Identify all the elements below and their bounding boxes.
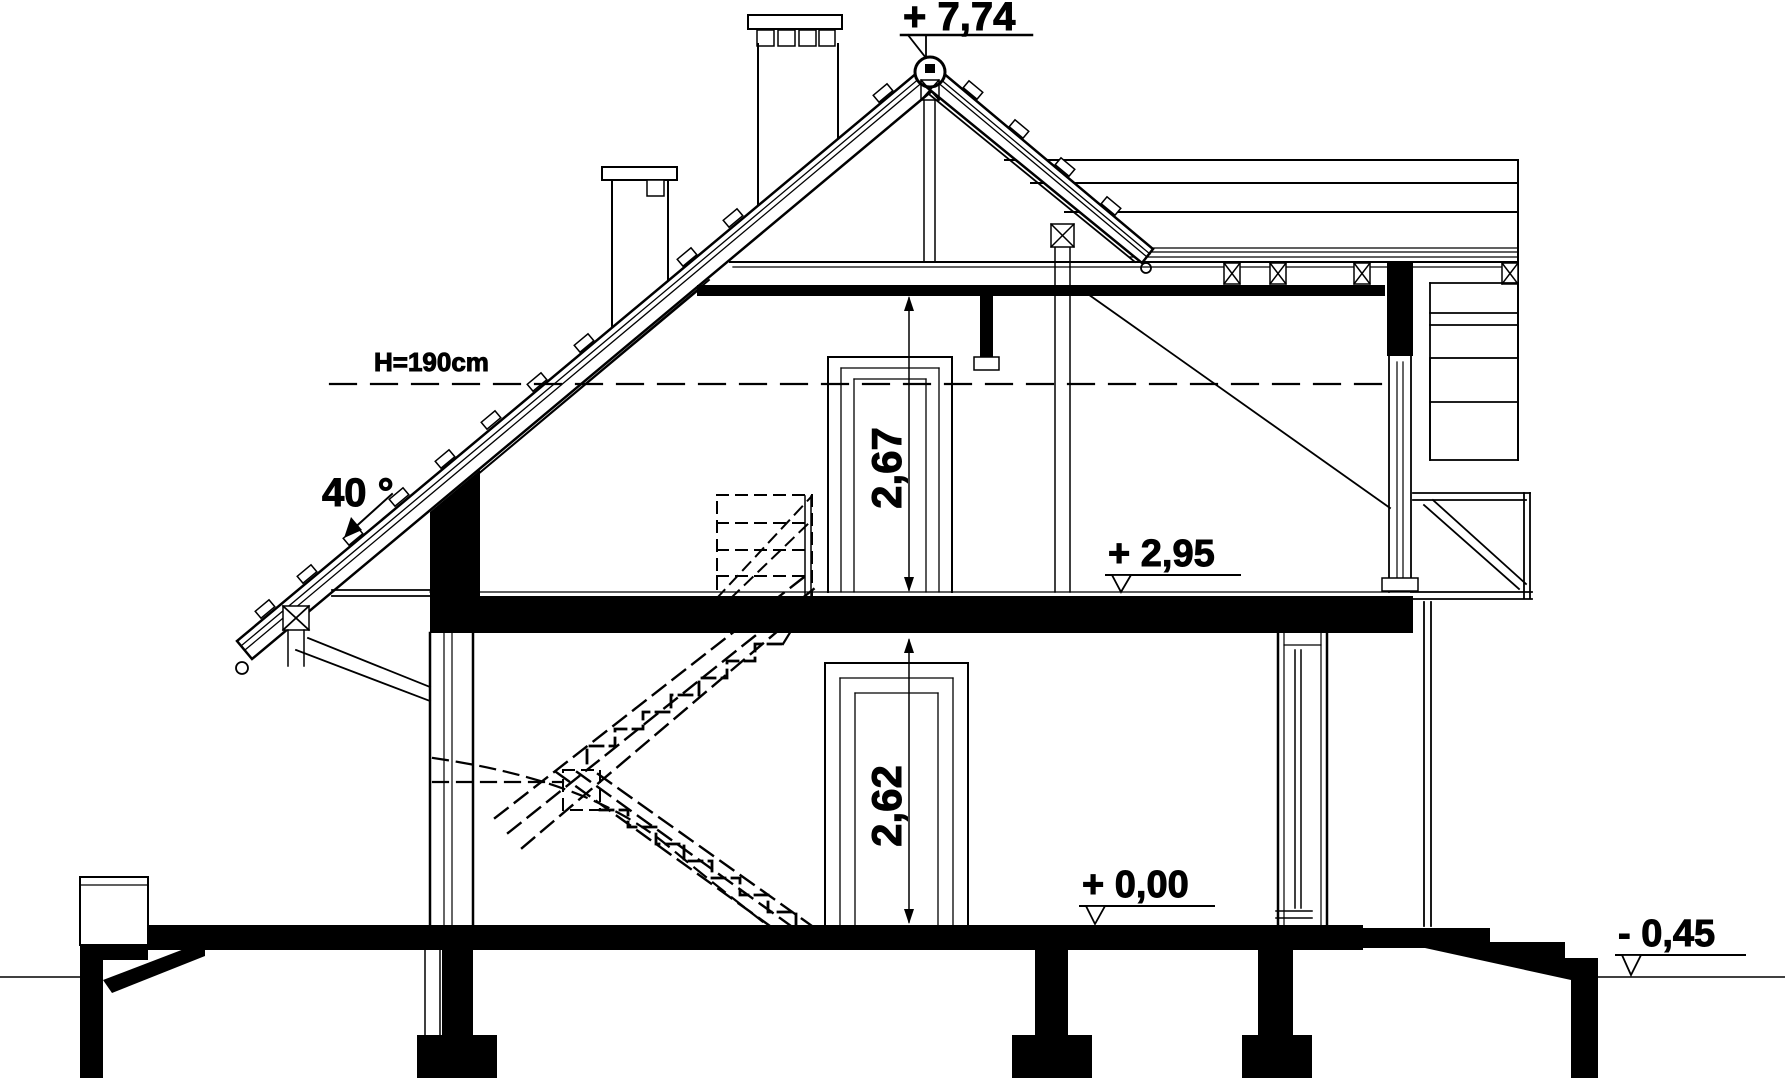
ground-floor-level-label: + 0,00 bbox=[1082, 864, 1189, 906]
attic-post-right bbox=[1051, 224, 1074, 592]
foundation-piers bbox=[417, 950, 1312, 1078]
terrace-right bbox=[1327, 928, 1598, 1078]
dim-attic-height-label: 2,67 bbox=[863, 427, 910, 509]
right-wall-window bbox=[1382, 356, 1418, 592]
right-wall-head bbox=[1387, 263, 1413, 356]
ridge-post bbox=[921, 80, 939, 262]
wall-stub bbox=[980, 295, 993, 357]
ridge-level-label: + 7,74 bbox=[903, 0, 1016, 39]
rear-wing-elevation bbox=[1430, 283, 1518, 460]
level-marker-ground-floor: + 0,00 bbox=[1080, 864, 1214, 924]
lintel-bracket bbox=[974, 357, 999, 370]
ceiling-slab bbox=[697, 285, 1385, 296]
dimension-ground-height: 2,62 bbox=[863, 638, 914, 924]
dimension-attic-height: 2,67 bbox=[863, 296, 914, 592]
first-floor-slab bbox=[430, 596, 1413, 633]
balcony bbox=[1413, 493, 1532, 599]
roof-right-slope bbox=[919, 62, 1153, 273]
gutter-left bbox=[236, 662, 248, 674]
headroom-label: H=190cm bbox=[374, 347, 489, 377]
level-marker-terrain: - 0,45 bbox=[1616, 913, 1745, 975]
terrain-level-label: - 0,45 bbox=[1618, 913, 1715, 955]
level-marker-ridge: + 7,74 bbox=[901, 0, 1032, 58]
level-marker-first-floor: + 2,95 bbox=[1106, 533, 1240, 592]
ridge-cap bbox=[915, 57, 945, 87]
porch-post bbox=[1424, 602, 1431, 926]
first-floor-level-label: + 2,95 bbox=[1108, 533, 1215, 575]
right-wall-ground bbox=[1276, 633, 1327, 925]
gutter-right bbox=[1141, 263, 1151, 273]
left-wall bbox=[430, 633, 473, 925]
eave-assembly-left bbox=[283, 590, 430, 701]
roof-left-slope bbox=[236, 62, 945, 674]
ground-slab bbox=[148, 925, 1363, 950]
cross-section-drawing: H=190cm 40 ° 2,67 bbox=[0, 0, 1785, 1080]
blueprint-page: H=190cm 40 ° 2,67 bbox=[0, 0, 1785, 1080]
roof-angle-label: 40 ° bbox=[322, 471, 394, 515]
dim-ground-height-label: 2,62 bbox=[863, 765, 910, 847]
